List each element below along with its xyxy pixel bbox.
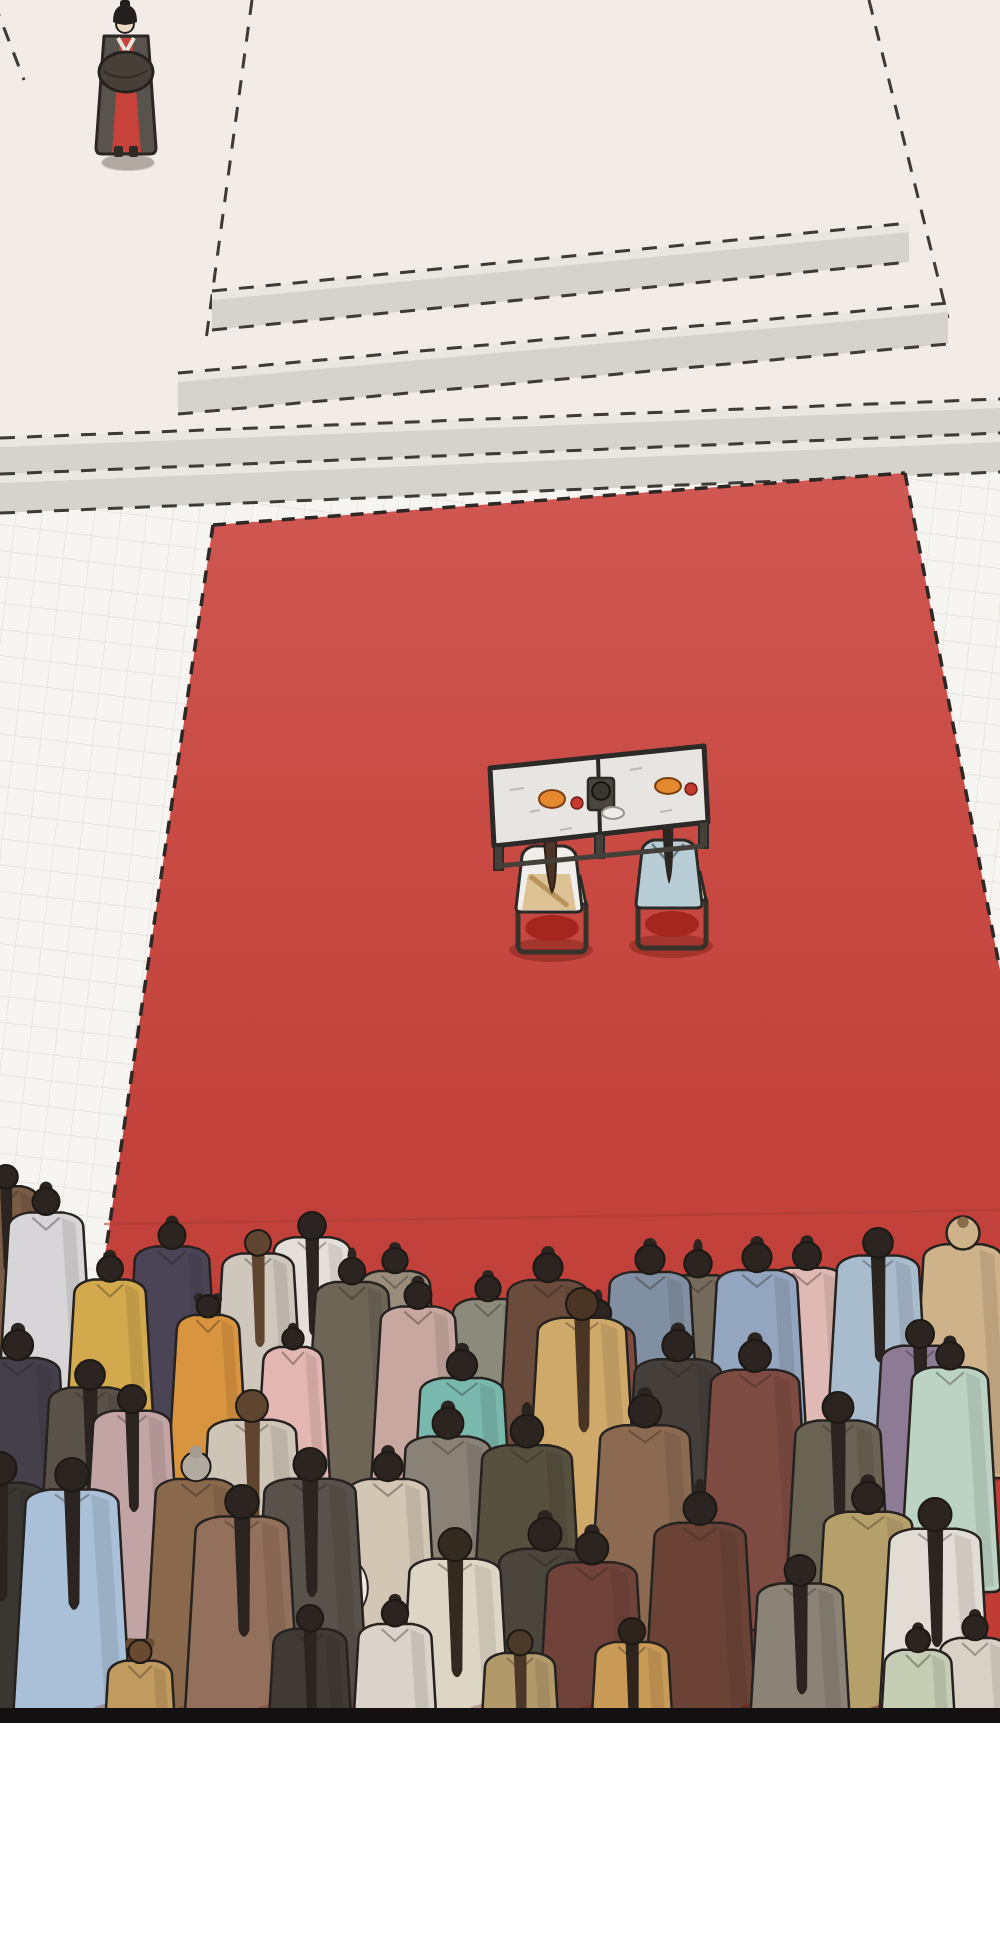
person-head — [739, 1340, 771, 1372]
official-shoe — [129, 146, 138, 157]
person-head — [282, 1328, 303, 1349]
comic-page — [0, 0, 1000, 1945]
person-head — [159, 1222, 186, 1249]
person-head — [339, 1258, 365, 1284]
person-head — [936, 1342, 964, 1370]
person-ponytail — [0, 1475, 7, 1600]
person-head — [373, 1452, 402, 1481]
person-head — [382, 1600, 408, 1626]
scene-svg — [0, 0, 1000, 1723]
person-head — [33, 1188, 60, 1215]
person-head — [75, 1360, 105, 1390]
person-head — [3, 1330, 33, 1360]
official-shadow — [102, 154, 154, 170]
person-head — [245, 1230, 271, 1256]
teapot-icon — [592, 782, 610, 800]
red-item-right — [685, 783, 697, 795]
person-head — [118, 1385, 146, 1413]
person-head — [566, 1288, 598, 1320]
person-head — [793, 1242, 821, 1270]
person-head — [507, 1630, 532, 1655]
page-margin — [0, 1723, 1000, 1945]
person-head — [197, 1295, 220, 1318]
hair-tuft — [957, 1217, 968, 1228]
panel-bottom-border — [0, 1708, 1000, 1723]
person-head — [475, 1276, 500, 1301]
person-head — [906, 1320, 934, 1348]
person-head — [236, 1390, 268, 1422]
person-head — [529, 1518, 562, 1551]
person-head — [635, 1245, 664, 1274]
person-head — [852, 1482, 884, 1514]
person-head — [294, 1448, 327, 1481]
person-head — [405, 1282, 432, 1309]
person-head — [128, 1640, 151, 1663]
person-head — [742, 1243, 771, 1272]
person-head — [823, 1392, 854, 1423]
person-head — [382, 1248, 407, 1273]
white-plate — [602, 807, 624, 819]
person-head — [533, 1253, 562, 1282]
person-head — [684, 1250, 712, 1278]
official-hat-knob — [120, 0, 130, 8]
person-head — [439, 1528, 472, 1561]
groom-chair-cushion-red — [645, 911, 699, 937]
person-head — [97, 1256, 123, 1282]
person-head — [962, 1615, 987, 1640]
person-head — [297, 1605, 323, 1631]
person-head — [511, 1415, 543, 1447]
comic-panel — [0, 0, 1000, 1723]
person-head — [55, 1458, 89, 1492]
person-head — [785, 1555, 816, 1586]
person-head — [0, 1165, 18, 1189]
fruit-dish-left — [539, 790, 565, 808]
person-head — [576, 1532, 608, 1564]
person-head — [298, 1212, 326, 1240]
person-head — [629, 1395, 661, 1427]
person-head — [906, 1628, 930, 1652]
red-item-left — [571, 797, 583, 809]
person-head — [863, 1228, 893, 1258]
person-head — [684, 1492, 717, 1525]
person-head — [919, 1498, 952, 1531]
fruit-dish-right — [655, 778, 681, 794]
person-head — [662, 1330, 693, 1361]
person-head — [433, 1408, 464, 1439]
person-head — [447, 1350, 477, 1380]
bride-chair-cushion-red — [525, 915, 579, 941]
person-head — [225, 1485, 259, 1519]
person-head — [619, 1618, 645, 1644]
gray-hair-bun — [189, 1445, 202, 1458]
official-shoe — [114, 146, 123, 157]
